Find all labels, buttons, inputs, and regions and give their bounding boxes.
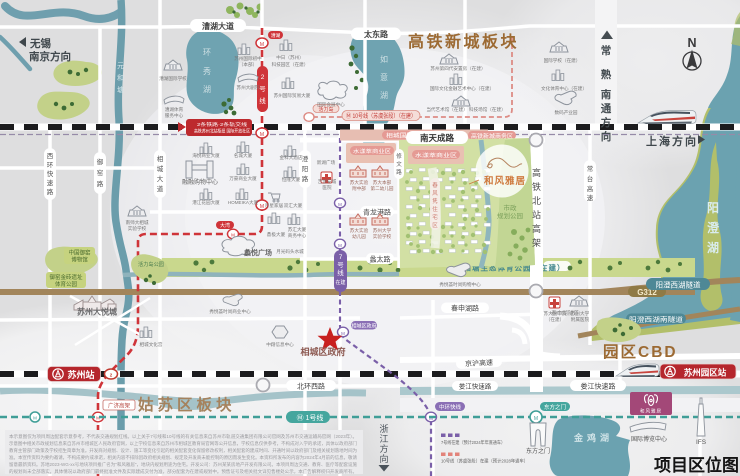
svg-text:苏大实验: 苏大实验 bbox=[350, 227, 369, 234]
svg-text:澄: 澄 bbox=[707, 220, 720, 235]
svg-text:春: 春 bbox=[432, 181, 438, 189]
svg-text:双汇大厦: 双汇大厦 bbox=[284, 202, 303, 209]
svg-text:附中部: 附中部 bbox=[352, 185, 366, 192]
svg-text:向: 向 bbox=[601, 130, 612, 143]
svg-text:数码产业园: 数码产业园 bbox=[555, 109, 578, 116]
svg-text:蠡太路: 蠡太路 bbox=[370, 255, 391, 264]
svg-text:实验学校: 实验学校 bbox=[373, 233, 392, 240]
svg-text:架: 架 bbox=[532, 238, 541, 248]
svg-text:Ⓜ 10号线（苏虞张段）（在建）: Ⓜ 10号线（苏虞张段）（在建） bbox=[346, 112, 416, 120]
svg-text:娄江快速路: 娄江快速路 bbox=[459, 382, 492, 391]
svg-text:阳: 阳 bbox=[302, 164, 309, 173]
svg-text:方: 方 bbox=[601, 116, 612, 129]
svg-text:如: 如 bbox=[380, 54, 388, 64]
svg-text:商务中心: 商务中心 bbox=[288, 232, 307, 239]
svg-text:广济高架: 广济高架 bbox=[108, 402, 131, 410]
svg-text:苏州站: 苏州站 bbox=[67, 369, 94, 380]
svg-text:窑: 窑 bbox=[97, 168, 104, 177]
svg-text:阳: 阳 bbox=[707, 200, 719, 215]
svg-text:娄江快速路: 娄江快速路 bbox=[581, 382, 616, 391]
svg-text:北环西路: 北环西路 bbox=[297, 382, 325, 391]
svg-text:北: 北 bbox=[532, 196, 541, 206]
svg-text:2: 2 bbox=[261, 74, 265, 81]
svg-text:道: 道 bbox=[157, 184, 164, 193]
svg-text:体育公园: 体育公园 bbox=[55, 280, 78, 288]
svg-text:融融购物中心: 融融购物中心 bbox=[182, 178, 218, 186]
svg-text:太东路: 太东路 bbox=[363, 29, 389, 39]
svg-text:鼎极大厦: 鼎极大厦 bbox=[267, 231, 286, 238]
svg-text:秀悦荟时尚购物中心: 秀悦荟时尚购物中心 bbox=[439, 281, 481, 288]
svg-text:水漾萃商业区: 水漾萃商业区 bbox=[353, 148, 391, 155]
svg-text:（本部）: （本部） bbox=[239, 61, 257, 68]
svg-text:漕湖大道: 漕湖大道 bbox=[202, 21, 234, 31]
svg-text:的规划尚未全部落实，具体情况以政府部门最终批准文件及实际建成: 的规划尚未全部落实，具体情况以政府部门最终批准文件及实际建成交付为准，部分配套为… bbox=[9, 468, 357, 475]
svg-text:常: 常 bbox=[587, 164, 594, 173]
svg-text:（在建）: （在建） bbox=[546, 316, 564, 323]
svg-text:东方之门: 东方之门 bbox=[526, 447, 550, 455]
svg-text:中翔信息中心: 中翔信息中心 bbox=[266, 341, 294, 348]
svg-text:区: 区 bbox=[432, 222, 438, 229]
svg-text:苏大本部: 苏大本部 bbox=[373, 179, 392, 186]
svg-text:M: M bbox=[33, 416, 37, 421]
svg-text:M: M bbox=[338, 243, 342, 248]
svg-text:本示意图仅为项目周边配套示意参考，不代表交通规划红线。以上关: 本示意图仅为项目周边配套示意参考，不代表交通规划红线。以上关于7号线和10号线的… bbox=[9, 433, 357, 440]
svg-text:熟: 熟 bbox=[601, 68, 612, 81]
svg-text:无锡: 无锡 bbox=[29, 37, 51, 50]
svg-text:水漾萃商业区: 水漾萃商业区 bbox=[415, 152, 457, 159]
svg-text:方: 方 bbox=[379, 443, 388, 454]
svg-text:铁: 铁 bbox=[532, 181, 541, 192]
svg-text:M: M bbox=[341, 331, 345, 336]
svg-text:西: 西 bbox=[47, 152, 54, 160]
svg-text:国际学校（在建）: 国际学校（在建） bbox=[544, 57, 581, 64]
svg-text:路: 路 bbox=[97, 179, 104, 188]
svg-text:苏州第四代安置房（在建）: 苏州第四代安置房（在建） bbox=[430, 65, 485, 72]
svg-text:在建: 在建 bbox=[335, 279, 345, 286]
svg-text:线: 线 bbox=[259, 96, 266, 105]
svg-text:春申湖路: 春申湖路 bbox=[451, 304, 479, 313]
svg-text:苏州国际初中: 苏州国际初中 bbox=[234, 55, 262, 62]
svg-text:南: 南 bbox=[601, 88, 612, 101]
svg-text:台: 台 bbox=[587, 174, 594, 183]
svg-text:苏州大剧院: 苏州大剧院 bbox=[237, 84, 260, 91]
svg-text:快: 快 bbox=[47, 169, 54, 178]
svg-text:速: 速 bbox=[47, 179, 54, 187]
svg-text:月光码头水城: 月光码头水城 bbox=[276, 248, 304, 255]
svg-text:和风雅居: 和风雅居 bbox=[640, 408, 662, 415]
svg-text:高铁新城板块: 高铁新城板块 bbox=[408, 32, 519, 51]
svg-text:第二幼儿园: 第二幼儿园 bbox=[371, 185, 394, 192]
svg-text:7: 7 bbox=[339, 254, 343, 261]
svg-text:意: 意 bbox=[380, 72, 388, 82]
svg-text:高: 高 bbox=[532, 223, 541, 234]
svg-text:站: 站 bbox=[532, 209, 541, 220]
svg-text:湖: 湖 bbox=[707, 240, 719, 255]
svg-text:M: M bbox=[338, 202, 342, 207]
svg-text:文: 文 bbox=[396, 160, 402, 168]
svg-text:春申湖隧道: 春申湖隧道 bbox=[551, 309, 579, 317]
svg-text:M: M bbox=[534, 416, 538, 422]
svg-text:南天成路: 南天成路 bbox=[420, 133, 455, 143]
svg-text:湖: 湖 bbox=[203, 85, 211, 94]
svg-text:修: 修 bbox=[396, 152, 402, 160]
svg-text:住: 住 bbox=[432, 205, 438, 213]
svg-text:规划公园: 规划公园 bbox=[497, 211, 523, 220]
svg-text:国际会展中心: 国际会展中心 bbox=[317, 101, 345, 108]
svg-text:高: 高 bbox=[587, 184, 594, 193]
svg-text:号: 号 bbox=[337, 261, 344, 269]
svg-text:科技园区（在建）: 科技园区（在建） bbox=[272, 61, 309, 68]
svg-text:服务中心: 服务中心 bbox=[165, 112, 184, 119]
svg-text:博物馆: 博物馆 bbox=[71, 256, 88, 264]
svg-text:Ⓜ 1号线: Ⓜ 1号线 bbox=[297, 413, 324, 422]
svg-text:港江花园大厦: 港江花园大厦 bbox=[192, 199, 220, 206]
svg-text:元: 元 bbox=[117, 62, 124, 70]
svg-text:医院: 医院 bbox=[322, 184, 332, 191]
svg-text:湖: 湖 bbox=[380, 91, 388, 100]
svg-text:大: 大 bbox=[157, 174, 164, 183]
svg-text:实验学校: 实验学校 bbox=[128, 225, 147, 232]
svg-text:常: 常 bbox=[601, 44, 612, 57]
svg-text:秀悦荟时尚商业中心: 秀悦荟时尚商业中心 bbox=[209, 308, 251, 315]
svg-text:苏汇大厦: 苏汇大厦 bbox=[288, 226, 307, 233]
svg-text:相城文化宫: 相城文化宫 bbox=[140, 341, 163, 348]
svg-text:国际文化金融艺术中心（在建）: 国际文化金融艺术中心（在建） bbox=[430, 85, 494, 92]
svg-text:塘: 塘 bbox=[117, 85, 124, 94]
svg-text:秀: 秀 bbox=[203, 66, 211, 76]
svg-text:月星家居: 月星家居 bbox=[265, 202, 284, 209]
svg-text:金鸡湖: 金鸡湖 bbox=[573, 432, 613, 443]
svg-text:青龙港路: 青龙港路 bbox=[363, 208, 391, 217]
svg-text:恒隆大厦: 恒隆大厦 bbox=[282, 176, 301, 183]
svg-text:当代艺术馆（在建） 科技场馆（在建）: 当代艺术馆（在建） 科技场馆（在建） bbox=[426, 106, 505, 113]
svg-text:留意最新资料。苏地2023-WG-xx号地块项目推广名为"和: 留意最新资料。苏地2023-WG-xx号地块项目推广名为"和风雅居"，地块内规划… bbox=[9, 461, 358, 468]
svg-text:路: 路 bbox=[302, 174, 309, 183]
svg-text:苏大实验: 苏大实验 bbox=[350, 179, 369, 186]
svg-text:国际博览中心: 国际博览中心 bbox=[631, 435, 667, 443]
svg-text:南师大相城: 南师大相城 bbox=[126, 219, 149, 226]
svg-text:准。本宣传资料为要约邀请，不构成要约或承诺，相关内容不排除因: 准。本宣传资料为要约邀请，不构成要约或承诺，相关内容不排除因政府相关规划、规定及… bbox=[9, 454, 358, 461]
svg-text:风: 风 bbox=[432, 190, 438, 197]
svg-text:附属医院: 附属医院 bbox=[571, 316, 590, 323]
svg-text:阳澄西湖隧道: 阳澄西湖隧道 bbox=[656, 280, 701, 290]
svg-text:相城区政府: 相城区政府 bbox=[300, 346, 345, 357]
svg-text:通: 通 bbox=[601, 103, 612, 115]
svg-text:活力岛公园: 活力岛公园 bbox=[138, 260, 164, 268]
svg-text:和风雅居: 和风雅居 bbox=[483, 175, 526, 187]
svg-text:隽: 隽 bbox=[432, 197, 438, 205]
svg-text:吉悦安城: 吉悦安城 bbox=[318, 178, 337, 185]
svg-text:教育主管部门政策及学校招生简章为准。开发商对规划、设计、施工: 教育主管部门政策及学校招生简章为准。开发商对规划、设计、施工等变化引起的相关配套… bbox=[9, 447, 357, 454]
svg-text:速: 速 bbox=[587, 194, 594, 202]
svg-text:高: 高 bbox=[532, 167, 541, 178]
svg-text:M: M bbox=[260, 132, 264, 138]
svg-text:东方之门: 东方之门 bbox=[544, 403, 566, 411]
svg-text:路: 路 bbox=[396, 168, 402, 176]
svg-text:相: 相 bbox=[157, 154, 164, 163]
svg-text:IFS: IFS bbox=[696, 439, 707, 446]
svg-text:中环快线: 中环快线 bbox=[439, 403, 462, 411]
svg-text:新湖广场: 新湖广场 bbox=[317, 159, 336, 166]
svg-text:江: 江 bbox=[379, 434, 388, 444]
svg-text:万豪商业大厦: 万豪商业大厦 bbox=[229, 175, 257, 182]
svg-text:相城区政府: 相城区政府 bbox=[351, 323, 376, 330]
svg-text:名城大厦: 名城大厦 bbox=[234, 152, 253, 159]
svg-text:金科大酒店: 金科大酒店 bbox=[280, 154, 303, 161]
svg-text:和: 和 bbox=[117, 73, 124, 82]
svg-text:澄: 澄 bbox=[302, 154, 309, 163]
svg-text:姑苏区板块: 姑苏区板块 bbox=[138, 395, 236, 414]
svg-text:蠡悦广场: 蠡悦广场 bbox=[244, 248, 272, 257]
svg-text:御: 御 bbox=[97, 157, 104, 166]
svg-text:漕湖: 漕湖 bbox=[271, 32, 281, 39]
svg-text:M: M bbox=[260, 42, 264, 48]
svg-text:2条铁路·2条轨交线: 2条铁路·2条轨交线 bbox=[197, 121, 248, 128]
svg-text:城: 城 bbox=[157, 165, 164, 173]
svg-text:海悦商业大厦: 海悦商业大厦 bbox=[192, 152, 220, 159]
svg-text:苏州国际贸易大厦: 苏州国际贸易大厦 bbox=[274, 92, 311, 99]
svg-text:幼儿园: 幼儿园 bbox=[352, 233, 366, 240]
svg-text:大湾: 大湾 bbox=[220, 222, 230, 229]
svg-text:示意图中相关市政规划信息来自苏州市相城区人民政府官网，以上学: 示意图中相关市政规划信息来自苏州市相城区人民政府官网，以上学校信息来自苏州市相城… bbox=[9, 440, 357, 447]
svg-text:中日（苏州）: 中日（苏州） bbox=[276, 54, 304, 61]
svg-text:宅: 宅 bbox=[432, 213, 438, 221]
svg-text:10号线（苏虞张段）在建（预计2028年通车）: 10号线（苏虞张段）在建（预计2028年通车） bbox=[441, 458, 528, 465]
svg-text:园区CBD: 园区CBD bbox=[603, 343, 678, 361]
svg-text:苏州园区站: 苏州园区站 bbox=[684, 367, 727, 377]
svg-text:苏州大学: 苏州大学 bbox=[373, 227, 392, 234]
svg-text:漕湖国际学校: 漕湖国际学校 bbox=[159, 75, 187, 82]
svg-text:号: 号 bbox=[259, 85, 266, 93]
svg-text:路: 路 bbox=[47, 187, 54, 196]
svg-text:HOMEIKA大厦: HOMEIKA大厦 bbox=[228, 199, 259, 206]
svg-text:向: 向 bbox=[379, 453, 388, 464]
svg-text:文化体育中心（在建）: 文化体育中心（在建） bbox=[541, 85, 587, 92]
svg-text:中国御窑: 中国御窑 bbox=[68, 249, 91, 257]
svg-text:7号线在建（预计2024年年底通车）: 7号线在建（预计2024年年底通车） bbox=[441, 439, 505, 446]
svg-text:浙: 浙 bbox=[379, 423, 388, 434]
svg-text:环: 环 bbox=[203, 48, 211, 57]
svg-text:项目区位图: 项目区位图 bbox=[654, 455, 739, 475]
svg-text:环: 环 bbox=[47, 161, 54, 169]
svg-text:线: 线 bbox=[337, 268, 344, 277]
svg-text:高铁苏州北站枢纽 国际开放社区: 高铁苏州北站枢纽 国际开放社区 bbox=[194, 128, 250, 135]
svg-text:N: N bbox=[687, 36, 696, 50]
svg-text:苏州大悦城: 苏州大悦城 bbox=[77, 307, 117, 317]
svg-text:南京方向: 南京方向 bbox=[29, 50, 71, 63]
svg-text:御窑金砖遗址: 御窑金砖遗址 bbox=[49, 273, 83, 281]
svg-text:M: M bbox=[260, 204, 264, 210]
svg-text:上海方向: 上海方向 bbox=[646, 134, 698, 148]
svg-text:阳澄西湖南隧道: 阳澄西湖南隧道 bbox=[629, 315, 684, 324]
svg-text:漕湖体育: 漕湖体育 bbox=[165, 106, 184, 113]
svg-text:市政: 市政 bbox=[504, 203, 518, 212]
